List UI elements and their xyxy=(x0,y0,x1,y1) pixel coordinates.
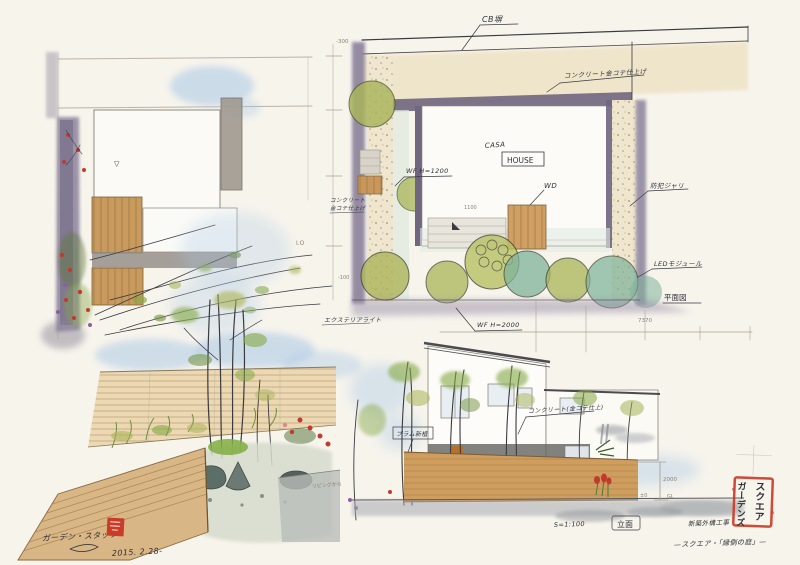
gl-label: GL xyxy=(667,494,674,500)
house-left-wall xyxy=(415,106,422,246)
elevation-title: 立面 xyxy=(617,519,633,529)
sky-wash xyxy=(180,212,290,288)
exterior-light-label: エクステリアライト xyxy=(324,317,381,324)
dim-100: -100 xyxy=(338,275,349,281)
concrete-note-line2: 金コテ仕上げ xyxy=(330,205,367,212)
watercolor-sketch-sheet: ▽ I.O xyxy=(0,0,800,565)
plum-label: プラム新植 xyxy=(396,430,428,438)
scale-label: S=1:100 xyxy=(554,520,585,529)
wall-pillar xyxy=(221,98,242,190)
datum-zero: ±0 xyxy=(640,493,647,499)
wood-slat-fence xyxy=(92,197,143,305)
house-label: HOUSE xyxy=(507,156,534,165)
drawing-canvas: ▽ I.O xyxy=(0,0,800,565)
concrete-note-line1: コンクリート xyxy=(330,197,366,204)
dim-300: -300 xyxy=(336,39,349,45)
paving-slab: リビングから xyxy=(278,470,342,542)
level-mark: ▽ xyxy=(114,160,120,168)
sky-wash xyxy=(95,339,205,371)
dim-7370: 7370 xyxy=(638,318,652,324)
gravel-label: 防犯ジャリ xyxy=(650,182,684,190)
dim-2000: 2000 xyxy=(663,477,677,483)
fence-height-2000-label: WF H=2000 xyxy=(477,321,520,329)
plan-title: 平面図 xyxy=(664,293,687,302)
dim-1100: 1100 xyxy=(464,205,477,211)
brush-smudge xyxy=(596,425,628,435)
tree-symbol xyxy=(349,81,395,127)
cb-wall-label: CB塀 xyxy=(482,15,503,24)
fence-height-1200-label: WF H=1200 xyxy=(406,167,449,175)
right-boundary-wall xyxy=(636,100,646,305)
pencil-note-io: I.O xyxy=(296,240,305,247)
moss xyxy=(208,439,248,455)
small-seal xyxy=(107,518,125,537)
project-title-line1: 新築外構工事 xyxy=(688,519,731,528)
led-module-label: LEDモジュール xyxy=(654,260,702,268)
wood-deck-label: WD xyxy=(544,182,557,190)
casa-label: CASA xyxy=(485,141,506,150)
